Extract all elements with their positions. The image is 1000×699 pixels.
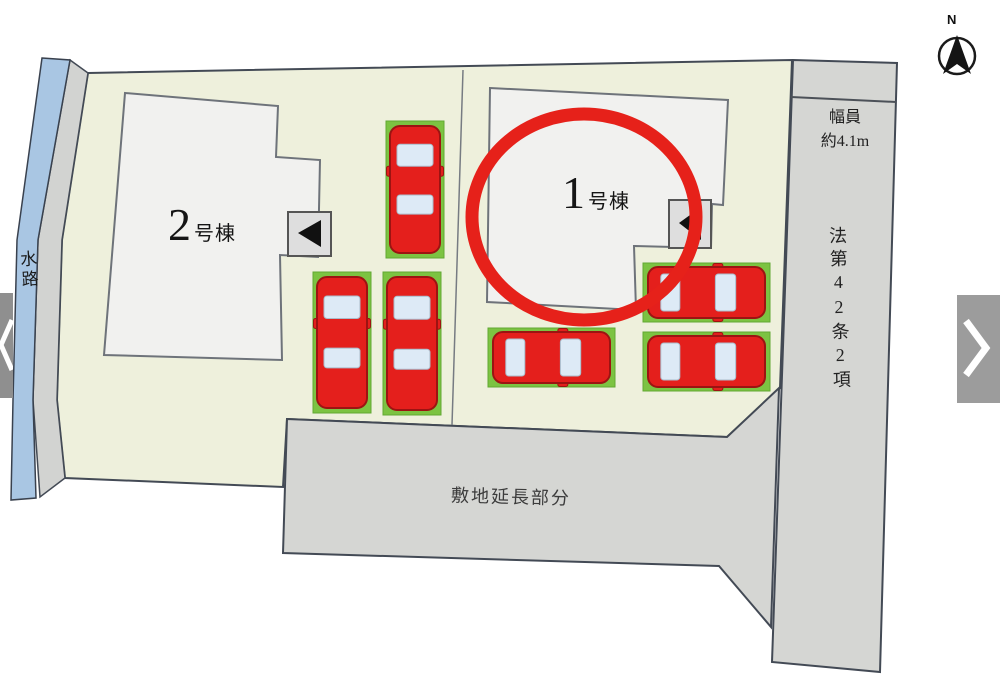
building-2-label: 2 号棟 [168, 202, 236, 248]
road-width-line2: 約4.1m [797, 130, 893, 154]
floorplan-viewer: 2 号棟 1 号棟 水路 幅員 約4.1m 法第42条2項 敷地延長部分 N [0, 0, 1000, 699]
parked-car-3 [383, 272, 441, 415]
prev-image-button[interactable] [0, 293, 13, 398]
parked-car-5 [488, 328, 615, 387]
chevron-right-icon [957, 295, 1000, 403]
compass-north-label: N [947, 12, 956, 27]
building-1-number: 1 [562, 170, 585, 216]
building-2-number: 2 [168, 202, 191, 248]
building-2-suffix: 号棟 [194, 224, 236, 244]
road-width-line1: 幅員 [797, 106, 893, 130]
next-image-button[interactable] [957, 295, 1000, 403]
entrance-marker-building-2 [288, 212, 331, 256]
waterway-label: 水路 [14, 249, 42, 291]
building-1-label: 1 号棟 [562, 170, 630, 216]
parked-car-2 [313, 272, 371, 413]
parked-car-1 [386, 121, 444, 258]
compass-icon [939, 35, 975, 74]
site-extension-label: 敷地延長部分 [416, 481, 607, 512]
road-width-label: 幅員 約4.1m [797, 106, 893, 154]
building-1-suffix: 号棟 [588, 192, 630, 212]
road-regulation-label: 法第42条2項 [824, 226, 854, 394]
chevron-left-icon [0, 293, 13, 398]
parked-car-6 [643, 332, 770, 391]
